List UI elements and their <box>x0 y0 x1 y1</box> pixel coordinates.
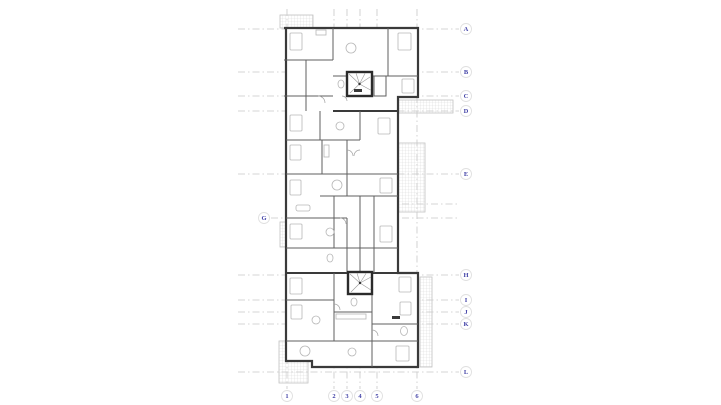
bed <box>398 33 411 50</box>
balcony-mid-right <box>398 143 425 212</box>
bed <box>291 305 302 319</box>
sofa <box>296 205 310 211</box>
toilet <box>351 298 357 306</box>
building <box>284 28 418 367</box>
bed <box>290 278 302 294</box>
bed <box>380 226 392 242</box>
bed <box>399 277 411 292</box>
table <box>312 316 320 324</box>
bed <box>290 115 302 131</box>
grid-bubble-2-label: 2 <box>332 393 335 400</box>
bathtub <box>401 327 408 336</box>
grid-bubble-C-label: C <box>464 93 469 100</box>
bed <box>290 145 301 160</box>
bed <box>378 118 390 134</box>
bed <box>402 79 414 93</box>
bed <box>396 346 409 361</box>
grid-bubble-G-label: G <box>261 215 266 222</box>
bed <box>380 178 392 193</box>
toilet <box>327 254 333 262</box>
wardrobe <box>324 145 329 157</box>
grid-bubble-H-label: H <box>463 272 468 279</box>
grid-bubble-L-label: L <box>464 369 469 376</box>
table <box>300 346 310 356</box>
table <box>326 228 334 236</box>
floor-plan-canvas: ABCDEGHIJKL123456 <box>0 0 721 405</box>
bed <box>290 224 302 239</box>
floor-plan-drawing: ABCDEGHIJKL123456 <box>0 0 721 405</box>
bed <box>290 33 302 50</box>
kitchen-counter <box>336 314 366 319</box>
grid-bubble-A-label: A <box>464 26 469 33</box>
balcony-top-left <box>280 15 313 28</box>
wardrobe <box>316 30 326 35</box>
grid-bubble-B-label: B <box>464 69 469 76</box>
grid-bubble-1-label: 1 <box>285 393 288 400</box>
table <box>346 43 356 53</box>
bed <box>400 302 411 315</box>
grid-bubble-D-label: D <box>464 108 469 115</box>
bed <box>290 180 301 195</box>
counter <box>392 316 400 319</box>
table <box>336 122 344 130</box>
toilet <box>338 80 344 88</box>
table <box>332 180 342 190</box>
grid-bubble-E-label: E <box>464 171 468 178</box>
balcony-bottom-right <box>420 277 432 367</box>
grid-bubble-K-label: K <box>463 321 468 328</box>
stair-core-lower <box>348 272 372 294</box>
table <box>348 348 356 356</box>
